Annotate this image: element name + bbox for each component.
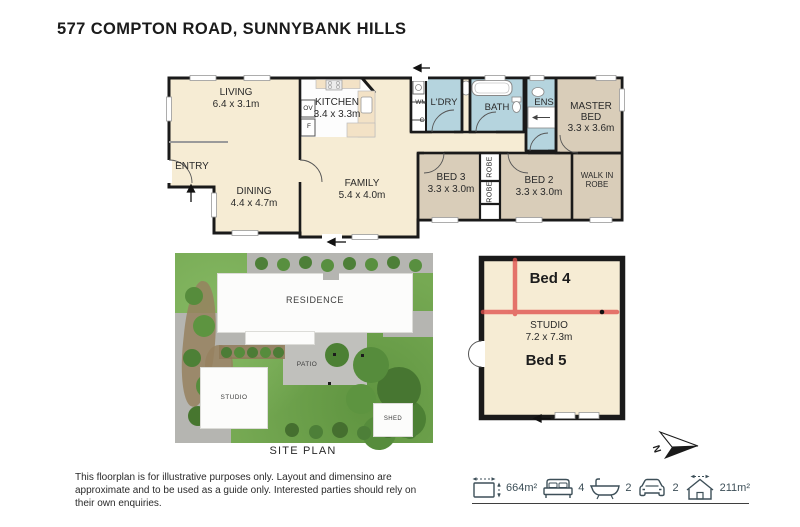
footer-divider bbox=[472, 503, 749, 504]
studio-bed4-label: Bed 4 bbox=[530, 270, 571, 287]
beds-value: 4 bbox=[578, 482, 584, 494]
house-area-value: 211m² bbox=[720, 482, 750, 494]
room-label-kitchen: KITCHEN 3.4 x 3.3m bbox=[314, 97, 361, 121]
north-compass: N bbox=[652, 426, 704, 466]
hedge-bushes bbox=[221, 347, 232, 358]
room-label-living: LIVING 6.4 x 3.1m bbox=[213, 87, 260, 111]
land-area-stat: 664m² bbox=[472, 476, 537, 500]
beds-stat: 4 bbox=[542, 477, 584, 499]
room-label-ensuite: ENS bbox=[534, 97, 554, 109]
cars-value: 2 bbox=[672, 482, 678, 494]
patio-post bbox=[333, 353, 336, 356]
house-area-stat: 211m² bbox=[684, 474, 750, 502]
bath-icon bbox=[589, 476, 621, 500]
room-label-dining: DINING 4.4 x 4.7m bbox=[231, 186, 278, 210]
washing-machine-icon bbox=[413, 81, 424, 94]
site-plan: RESIDENCE PATIO STUDIO SHED bbox=[175, 253, 433, 443]
floorplan-page: { "page": { "title": "577 COMPTON ROAD, … bbox=[0, 0, 800, 527]
room-label-laundry: L'DRY bbox=[431, 97, 458, 109]
residence-label: RESIDENCE bbox=[286, 295, 344, 305]
compass-arrow-top bbox=[660, 432, 698, 447]
tree-cluster-right bbox=[325, 343, 349, 367]
room-label-walk-in-robe: WALK IN ROBE bbox=[576, 171, 618, 189]
compass-north-label: N bbox=[650, 444, 663, 454]
label-robe-top: ROBE bbox=[487, 156, 494, 177]
toilet-icon bbox=[513, 102, 521, 113]
kitchen-bench bbox=[347, 123, 375, 137]
studio-bed5-label: Bed 5 bbox=[526, 352, 567, 369]
room-label-bath: BATH bbox=[485, 102, 510, 114]
studio-label: STUDIO bbox=[221, 394, 248, 401]
studio-room-label: STUDIO 7.2 x 7.3m bbox=[526, 320, 573, 344]
house-icon bbox=[684, 474, 716, 502]
label-fridge: F bbox=[307, 123, 311, 130]
site-plan-caption: SITE PLAN bbox=[269, 445, 336, 457]
marker-dot bbox=[600, 310, 605, 315]
baths-value: 2 bbox=[625, 482, 631, 494]
car-icon bbox=[636, 476, 668, 500]
room-label-bed3: BED 3 3.3 x 3.0m bbox=[428, 172, 475, 196]
studio-door-gap bbox=[478, 341, 485, 367]
sink-icon bbox=[361, 97, 372, 113]
label-wm: WM bbox=[415, 99, 427, 106]
tree-row-top bbox=[255, 257, 268, 270]
label-oven: OV bbox=[303, 105, 312, 112]
compass-arrow-bottom bbox=[664, 446, 698, 459]
tree-row-bottom bbox=[285, 423, 299, 437]
patio-post bbox=[361, 354, 364, 357]
room-label-entry: ENTRY bbox=[175, 161, 209, 173]
patio-post bbox=[328, 382, 331, 385]
cars-stat: 2 bbox=[636, 476, 678, 500]
residence-notch bbox=[323, 273, 339, 280]
land-area-value: 664m² bbox=[506, 482, 537, 494]
stove-icon bbox=[326, 80, 342, 90]
baths-stat: 2 bbox=[589, 476, 631, 500]
room-label-master-bed: MASTER BED 3.3 x 3.6m bbox=[560, 101, 622, 134]
tree-cluster-left bbox=[185, 287, 203, 305]
bed-icon bbox=[542, 477, 574, 499]
label-cupboard: C bbox=[420, 117, 425, 124]
top-path bbox=[247, 253, 433, 273]
label-robe-bottom: ROBE bbox=[487, 181, 494, 202]
property-stats: 664m² 4 2 2 bbox=[472, 475, 750, 501]
shed-label: SHED bbox=[384, 416, 402, 422]
land-size-icon bbox=[472, 476, 502, 500]
ensuite-basin-icon bbox=[532, 88, 544, 97]
residence-extension bbox=[245, 331, 315, 345]
room-label-family: FAMILY 5.4 x 4.0m bbox=[339, 178, 386, 202]
patio-label: PATIO bbox=[297, 361, 318, 368]
room-label-bed2: BED 2 3.3 x 3.0m bbox=[516, 175, 563, 199]
disclaimer-text: This floorplan is for illustrative purpo… bbox=[75, 471, 433, 510]
page-title: 577 COMPTON ROAD, SUNNYBANK HILLS bbox=[57, 20, 406, 39]
